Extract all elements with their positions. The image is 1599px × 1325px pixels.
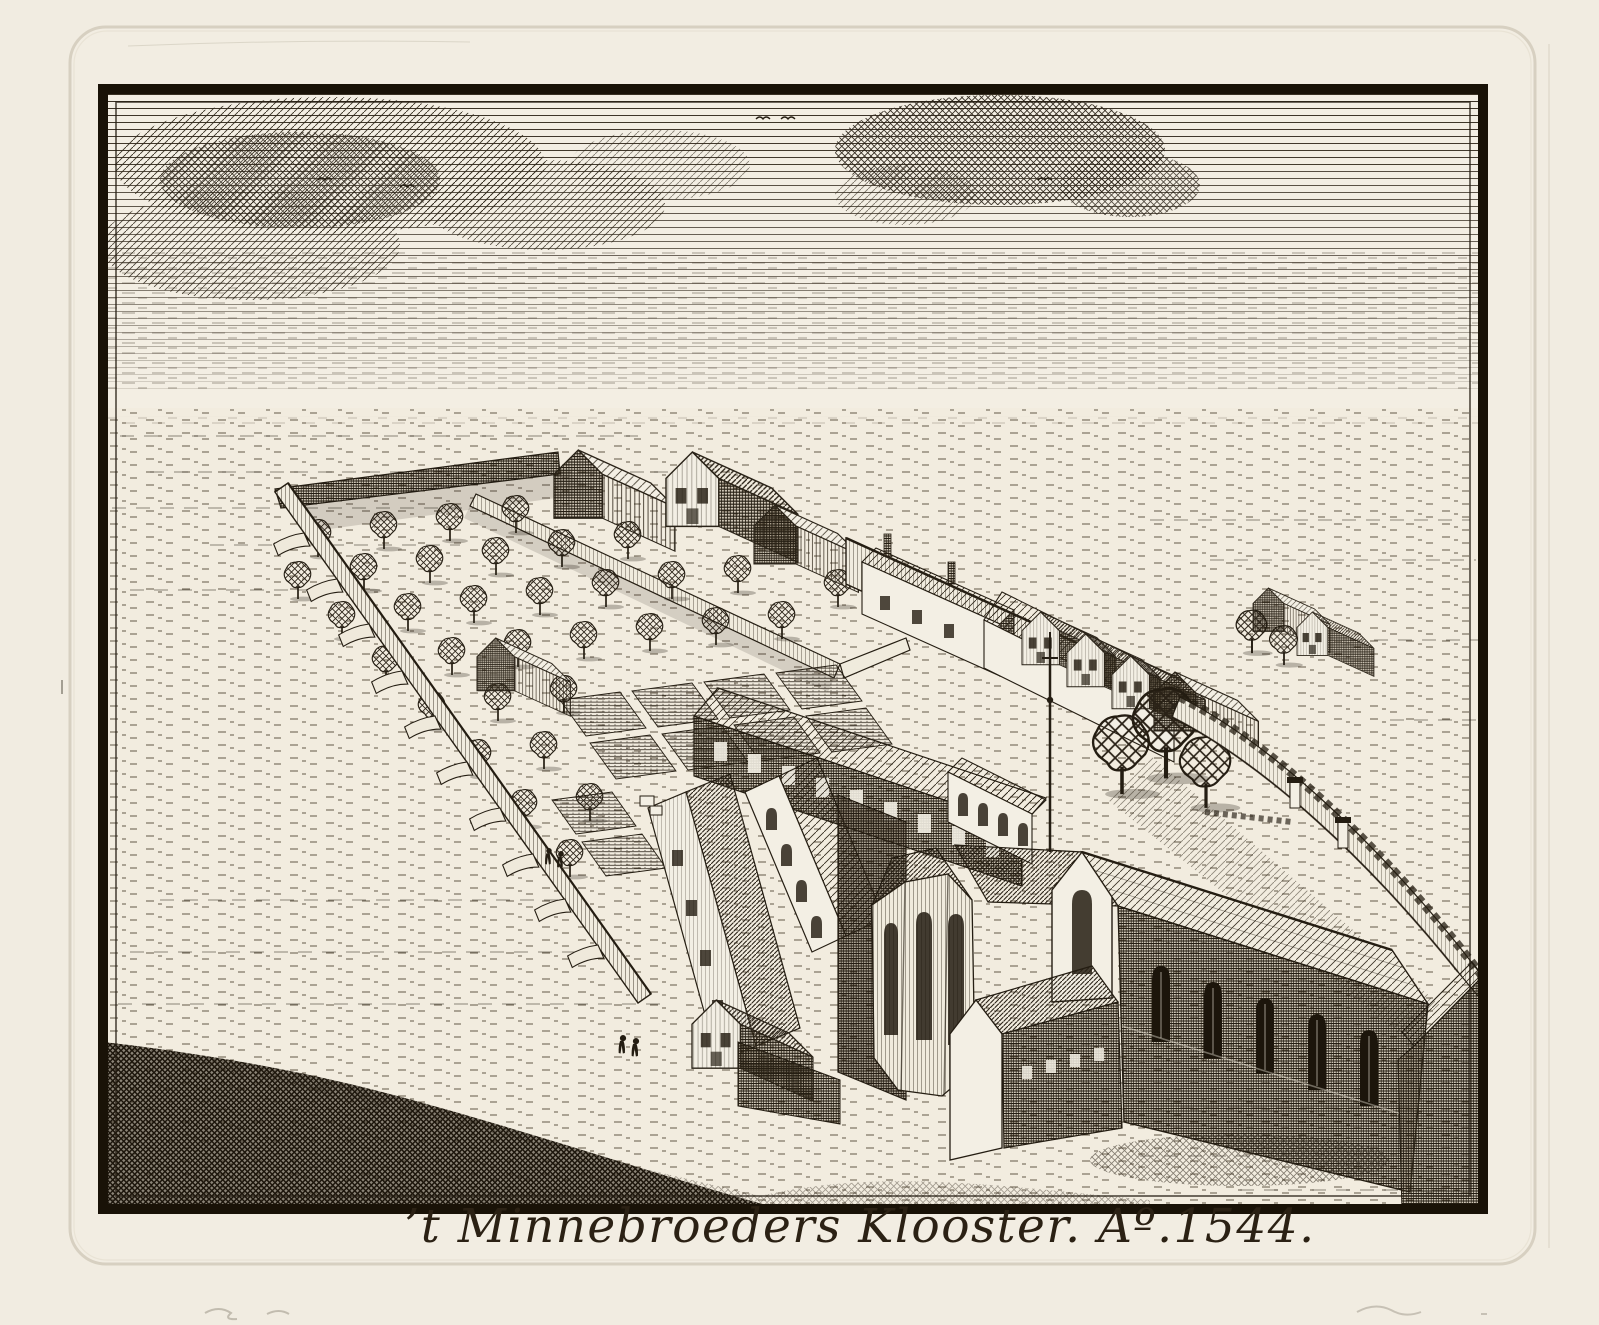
caption-text: ’t Minnebroeders Klooster. Aº.1544. [390, 1194, 1330, 1266]
chimney [948, 562, 955, 584]
sky [100, 90, 1481, 425]
chimney [884, 534, 891, 556]
engraving [0, 0, 1599, 1325]
engraving-sheet: ’t Minnebroeders Klooster. Aº.1544. [0, 0, 1599, 1325]
engraved-scene [100, 90, 1483, 1210]
church-shadow [1090, 1134, 1390, 1186]
